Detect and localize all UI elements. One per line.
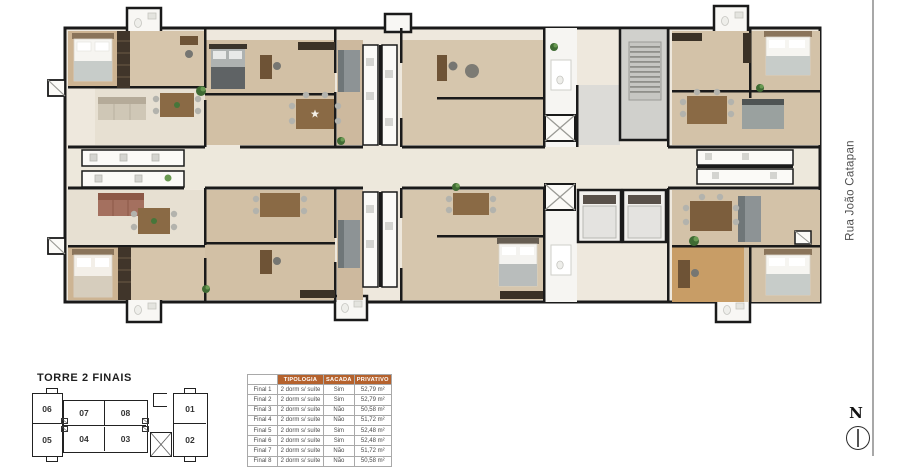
cell-tipologia: 2 dorm s/ suíte bbox=[278, 436, 324, 446]
key-plan-block-left: 06 05 bbox=[32, 393, 63, 457]
key-plan-unit-06: 06 bbox=[33, 394, 61, 424]
table-header-tipologia: TIPOLOGIA bbox=[278, 375, 324, 385]
cell-tipologia: 2 dorm s/ suíte bbox=[278, 405, 324, 415]
key-plan-door-mark bbox=[142, 426, 149, 432]
table-row: Final 1 2 dorm s/ suíte Sim 52,79 m² bbox=[248, 385, 392, 395]
cell-privativo: 52,48 m² bbox=[354, 436, 391, 446]
compass-north-label: N bbox=[843, 404, 869, 422]
table-row: Final 8 2 dorm s/ suíte Não 50,58 m² bbox=[248, 456, 392, 466]
key-plan-elevator bbox=[150, 432, 172, 457]
balconies bbox=[578, 190, 666, 242]
cell-tipologia: 2 dorm s/ suíte bbox=[278, 446, 324, 456]
units-table: TIPOLOGIA SACADA PRIVATIVO Final 1 2 dor… bbox=[247, 374, 392, 467]
key-plan-unit-01: 01 bbox=[174, 394, 206, 424]
cell-final: Final 4 bbox=[248, 415, 278, 425]
key-plan-door-mark bbox=[61, 426, 68, 432]
compass-icon bbox=[846, 426, 870, 450]
compass-needle bbox=[857, 429, 859, 447]
cell-tipologia: 2 dorm s/ suíte bbox=[278, 456, 324, 466]
cell-final: Final 7 bbox=[248, 446, 278, 456]
cell-privativo: 51,72 m² bbox=[354, 415, 391, 425]
street-name-label: Rua João Catapan bbox=[845, 111, 860, 271]
cell-privativo: 52,79 m² bbox=[354, 385, 391, 395]
cell-final: Final 6 bbox=[248, 436, 278, 446]
table-header-row: TIPOLOGIA SACADA PRIVATIVO bbox=[248, 375, 392, 385]
table-header-sacada: SACADA bbox=[324, 375, 355, 385]
cell-privativo: 52,48 m² bbox=[354, 425, 391, 435]
key-plan-unit-04: 04 bbox=[64, 427, 105, 451]
cell-privativo: 51,72 m² bbox=[354, 446, 391, 456]
cell-final: Final 8 bbox=[248, 456, 278, 466]
key-plan-tab bbox=[184, 457, 196, 462]
table-header-blank bbox=[248, 375, 278, 385]
key-plan-unit-03: 03 bbox=[105, 427, 146, 451]
key-plan-title: TORRE 2 FINAIS bbox=[37, 372, 132, 384]
key-plan-unit-05: 05 bbox=[33, 425, 61, 455]
cell-final: Final 5 bbox=[248, 425, 278, 435]
cell-sacada: Sim bbox=[324, 425, 355, 435]
cell-tipologia: 2 dorm s/ suíte bbox=[278, 425, 324, 435]
cell-privativo: 52,79 m² bbox=[354, 395, 391, 405]
table-row: Final 2 2 dorm s/ suíte Sim 52,79 m² bbox=[248, 395, 392, 405]
cell-tipologia: 2 dorm s/ suíte bbox=[278, 395, 324, 405]
table-row: Final 5 2 dorm s/ suíte Sim 52,48 m² bbox=[248, 425, 392, 435]
cell-final: Final 1 bbox=[248, 385, 278, 395]
cell-privativo: 50,58 m² bbox=[354, 405, 391, 415]
table-header-privativo: PRIVATIVO bbox=[354, 375, 391, 385]
key-plan-step bbox=[153, 393, 167, 407]
key-plan-tab bbox=[46, 457, 58, 462]
key-plan-block-right: 01 02 bbox=[173, 393, 208, 457]
cell-sacada: Sim bbox=[324, 385, 355, 395]
cell-privativo: 50,58 m² bbox=[354, 456, 391, 466]
key-plan-unit-07: 07 bbox=[64, 401, 105, 426]
table-row: Final 7 2 dorm s/ suíte Não 51,72 m² bbox=[248, 446, 392, 456]
cell-final: Final 2 bbox=[248, 395, 278, 405]
cell-sacada: Não bbox=[324, 456, 355, 466]
street-line bbox=[872, 0, 874, 456]
key-plan-diagram: 06 05 07 08 04 03 01 02 bbox=[30, 388, 222, 466]
page: Rua João Catapan N TORRE 2 FINAIS 06 05 … bbox=[0, 0, 900, 468]
floor-plan-rendering bbox=[0, 0, 900, 345]
cell-sacada: Sim bbox=[324, 436, 355, 446]
cell-tipologia: 2 dorm s/ suíte bbox=[278, 385, 324, 395]
table-row: Final 3 2 dorm s/ suíte Não 50,58 m² bbox=[248, 405, 392, 415]
cell-final: Final 3 bbox=[248, 405, 278, 415]
cell-sacada: Não bbox=[324, 415, 355, 425]
cell-tipologia: 2 dorm s/ suíte bbox=[278, 415, 324, 425]
table-row: Final 6 2 dorm s/ suíte Sim 52,48 m² bbox=[248, 436, 392, 446]
cell-sacada: Sim bbox=[324, 395, 355, 405]
key-plan-unit-08: 08 bbox=[105, 401, 146, 426]
cell-sacada: Não bbox=[324, 405, 355, 415]
key-plan-block-middle: 07 08 04 03 bbox=[63, 400, 148, 453]
key-plan-unit-02: 02 bbox=[174, 425, 206, 455]
key-plan-door-mark bbox=[61, 418, 68, 424]
cell-sacada: Não bbox=[324, 446, 355, 456]
key-plan-door-mark bbox=[142, 418, 149, 424]
table-row: Final 4 2 dorm s/ suíte Não 51,72 m² bbox=[248, 415, 392, 425]
